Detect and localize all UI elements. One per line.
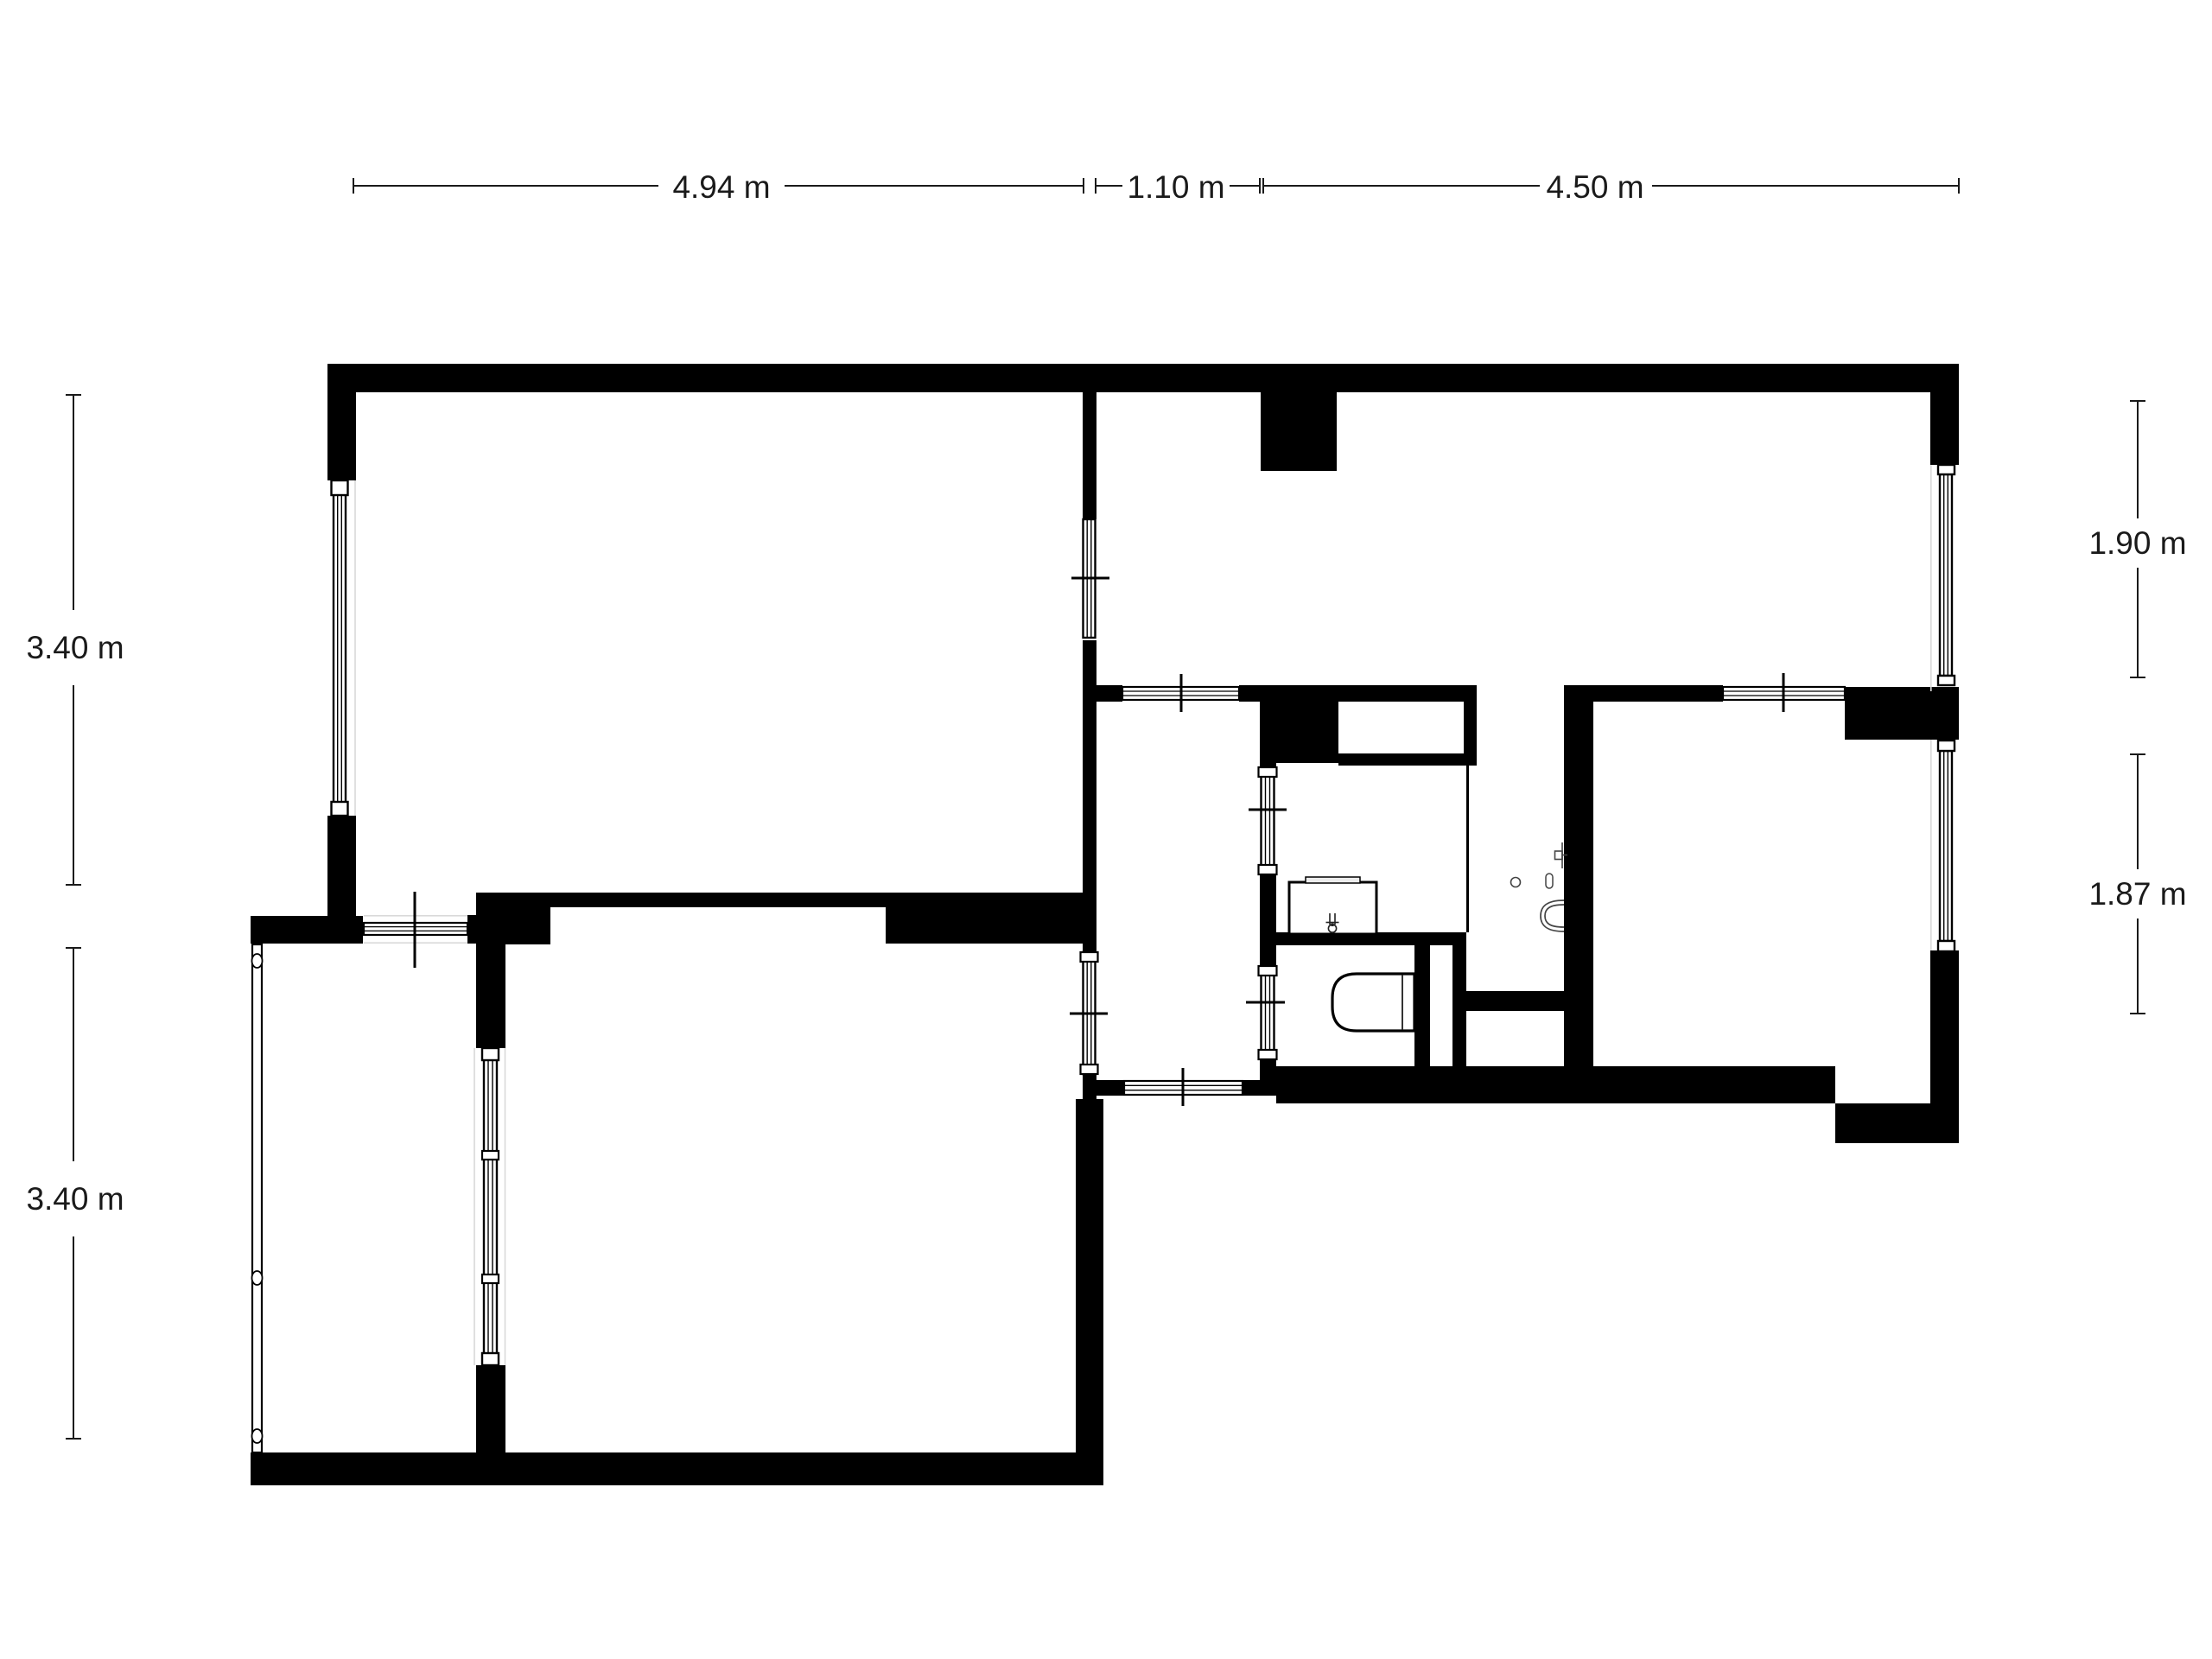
- svg-text:3.40 m: 3.40 m: [26, 1181, 124, 1217]
- svg-text:4.50 m: 4.50 m: [1546, 169, 1643, 205]
- svg-text:1.87 m: 1.87 m: [2088, 876, 2186, 912]
- svg-text:3.40 m: 3.40 m: [26, 630, 124, 665]
- svg-text:4.94 m: 4.94 m: [672, 169, 770, 205]
- svg-text:1.90 m: 1.90 m: [2088, 525, 2186, 561]
- svg-text:1.10 m: 1.10 m: [1127, 169, 1224, 205]
